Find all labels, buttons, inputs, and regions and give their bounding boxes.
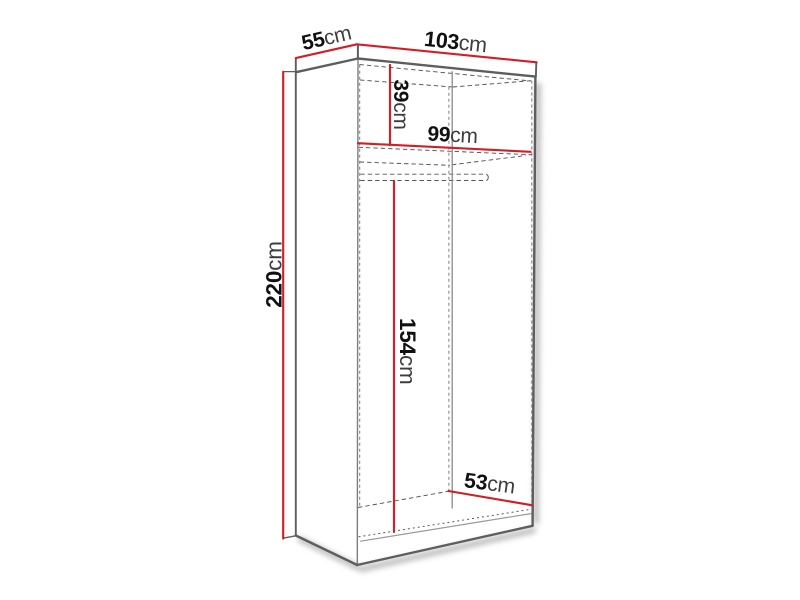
svg-text:99cm: 99cm (427, 123, 478, 149)
svg-text:220cm: 220cm (262, 241, 287, 308)
svg-text:154cm: 154cm (395, 318, 420, 385)
svg-text:39cm: 39cm (389, 79, 412, 129)
